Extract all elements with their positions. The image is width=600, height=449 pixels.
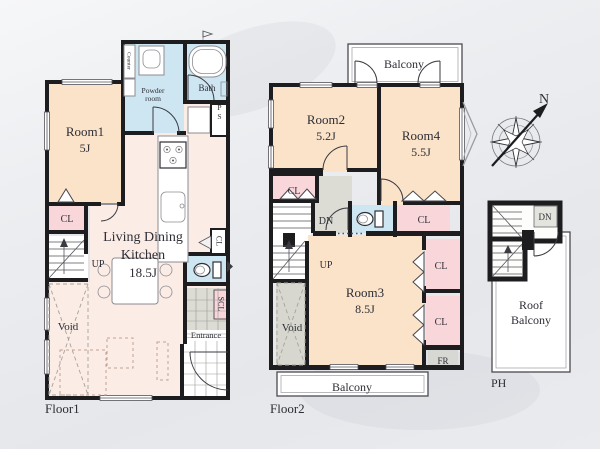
- room1-label: Room1: [66, 124, 104, 139]
- washbasin-icon: [139, 46, 164, 75]
- entrance-label: Entrance: [191, 330, 221, 340]
- powder-room-label-line2: room: [145, 94, 161, 103]
- bathtub-icon: [189, 46, 226, 77]
- ldk-label-line2: Kitchen: [121, 248, 165, 263]
- closet4-label: CL: [418, 215, 431, 226]
- hall-closet-label: CL: [215, 236, 224, 246]
- floorplan-drawing: Room1 5J CL UP Void Living Dining Kitche…: [0, 0, 600, 449]
- compass-rose: N: [490, 92, 549, 168]
- room3-label: Room3: [346, 285, 384, 300]
- ldk-label-line1: Living Dining: [103, 230, 183, 245]
- floorplan-canvas: Room1 5J CL UP Void Living Dining Kitche…: [0, 0, 600, 449]
- floor1-void-label: Void: [58, 321, 79, 333]
- floor2-void-label: Void: [282, 322, 303, 334]
- floor1-plan: Room1 5J CL UP Void Living Dining Kitche…: [45, 31, 234, 416]
- floor1-up-label: UP: [92, 259, 105, 270]
- floor1-title: Floor1: [45, 401, 80, 416]
- closet3-label: CL: [288, 186, 301, 197]
- refrigerator-slot: [188, 107, 210, 133]
- compass-north-label: N: [539, 92, 549, 107]
- floor2-dn-label: DN: [319, 216, 333, 227]
- room3-size: 8.5J: [355, 302, 375, 316]
- roof-balcony-label-line1: Roof: [519, 298, 543, 312]
- room2-size: 5.2J: [316, 129, 336, 143]
- vent-flag-icon: [203, 31, 212, 40]
- bay-window-mark: [463, 102, 477, 166]
- ldk-size: 18.5J: [129, 265, 157, 280]
- balcony-bottom-label: Balcony: [332, 380, 372, 394]
- counter-label: Counter: [126, 52, 132, 70]
- floor2-plan: Balcony Room2 5.2J Room4 5.5J CL DN CL U…: [269, 44, 478, 416]
- balcony-top-label: Balcony: [384, 57, 424, 71]
- roof-balcony-label-line2: Balcony: [511, 313, 551, 327]
- room1-size: 5J: [80, 141, 91, 155]
- stove-icon: [160, 142, 186, 168]
- scl-label: SCL: [217, 297, 226, 312]
- penthouse-plan: DN Roof Balcony PH: [490, 203, 570, 390]
- fr-label: FR: [437, 356, 448, 366]
- floor2-title: Floor2: [270, 401, 305, 416]
- ps-label: PS: [215, 103, 224, 121]
- closet6-label: CL: [435, 317, 448, 328]
- toilet2-icon: [357, 211, 383, 227]
- ph-dn-label: DN: [539, 212, 552, 222]
- room4-size: 5.5J: [411, 145, 431, 159]
- closet1-label: CL: [61, 214, 74, 225]
- bath-label: Bath: [199, 83, 216, 93]
- ph-title: PH: [491, 376, 507, 390]
- room4-label: Room4: [402, 128, 441, 143]
- floor2-up-label: UP: [320, 260, 333, 271]
- closet5-label: CL: [435, 261, 448, 272]
- room2-label: Room2: [307, 112, 345, 127]
